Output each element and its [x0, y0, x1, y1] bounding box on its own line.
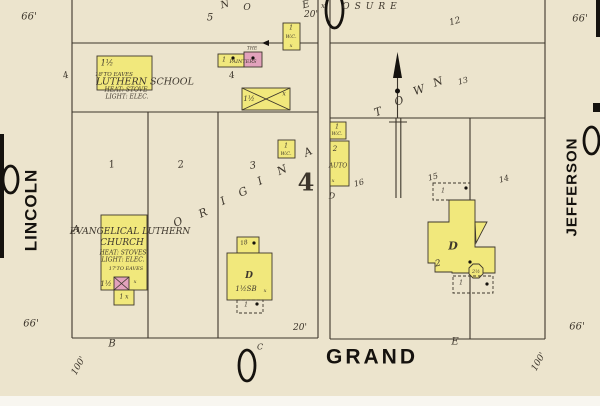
barn-stories: 1½: [243, 95, 254, 103]
margin-bar-2: [593, 103, 600, 112]
street-lincoln: LINCOLN: [22, 169, 41, 252]
church-x: x: [134, 279, 137, 285]
marker-dot-7: [255, 302, 258, 305]
street-grand: GRAND: [326, 346, 418, 369]
auto-stories: 2: [332, 145, 338, 153]
street-jefferson: JEFFERSON: [564, 137, 581, 236]
dim-20-bottom: 20': [292, 323, 307, 333]
mid-porch-label: 1: [244, 302, 248, 309]
mid-stories: 1½SB: [235, 285, 256, 293]
x-mark-top: x: [321, 2, 325, 10]
dim-66-bottom-right: 66': [569, 322, 584, 333]
margin-bar-0: [0, 134, 4, 258]
wc1-stories: 1: [289, 25, 293, 32]
marker-dot-3: [395, 89, 400, 94]
painters-stories: 1: [222, 57, 226, 64]
mid-rear-label: 18: [240, 239, 249, 247]
marker-dot-2: [252, 241, 255, 244]
paper-edge: [0, 396, 600, 406]
painters-label: PAINTERS: [228, 59, 257, 65]
dwelling-porch-bottom-label: 1: [459, 280, 463, 287]
church-heat: HEAT: STOVES: [98, 250, 146, 257]
auto-x: x: [332, 178, 335, 184]
letter-o-top: O: [243, 3, 251, 13]
mid-x: x: [264, 288, 267, 294]
school-heat: HEAT: STOVE: [104, 87, 149, 94]
dim-66-bottom-left: 66': [23, 319, 38, 330]
corner-c: C: [257, 343, 263, 352]
dim-66-top-left: 66': [21, 12, 36, 23]
school-light: LIGHT: ELEC.: [104, 94, 148, 101]
auto-label: AUTO: [328, 163, 347, 170]
church-light: LIGHT: ELEC.: [100, 257, 144, 264]
word-osure: OSURE: [342, 2, 401, 12]
school-stories: 1½: [101, 59, 114, 68]
margin-bar-1: [596, 0, 600, 37]
mid-d: D: [244, 271, 253, 281]
church-ext-label: 1 x: [119, 294, 129, 301]
dim-20-top: 20': [303, 10, 318, 20]
church-name-2: CHURCH: [100, 238, 144, 248]
block-number-4: 4: [298, 168, 315, 197]
wc3-label: W.C.: [331, 131, 343, 137]
dwelling-oct-label: 2½: [471, 268, 480, 275]
wc1-x: x: [290, 43, 293, 49]
wc3-stories: 1: [335, 124, 339, 131]
church-eaves: 17'TO EAVES: [109, 266, 144, 272]
wc2-stories: 1: [284, 143, 288, 150]
church-stories: 1½: [100, 280, 111, 288]
painters-the: THE: [247, 46, 258, 52]
lot-5: 5: [207, 13, 213, 24]
corner-b: B: [107, 339, 115, 350]
sanborn-map-page: 66'5NOE20'xOSURE1266'41½18'TO EAVESLUTHE…: [0, 0, 600, 406]
sanborn-map: 66'5NOE20'xOSURE1266'41½18'TO EAVESLUTHE…: [0, 0, 600, 406]
wc2-label: W.C.: [280, 151, 292, 157]
marker-dot-4: [464, 186, 467, 189]
corner-e: E: [450, 337, 459, 348]
map-paper: [0, 0, 600, 406]
church-name-1: EVANGELICAL LUTHERN: [69, 227, 192, 237]
dwelling-porch-top-label: 1: [441, 188, 445, 195]
wc1-label: W.C.: [285, 34, 297, 40]
marker-dot-6: [485, 282, 488, 285]
dim-66-top-right: 66': [572, 14, 587, 25]
marker-dot-5: [468, 260, 471, 263]
dwelling-d: D: [447, 240, 458, 253]
letter-d: D: [328, 192, 336, 201]
